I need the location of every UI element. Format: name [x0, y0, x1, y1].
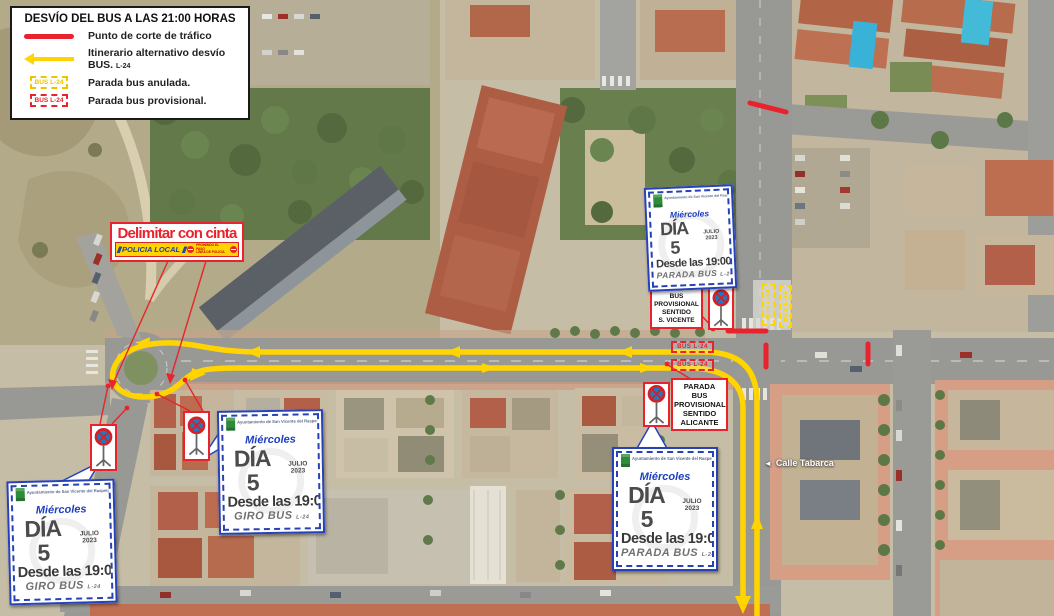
- legend-item-provisional-stop: BUS L-24 Parada bus provisional.: [20, 94, 240, 107]
- sign-date: JULIO 2023: [72, 530, 107, 545]
- police-badge-label: [112, 496, 113, 502]
- annulled-stop-sample: BUS L-24: [30, 76, 69, 89]
- detour-arrow-sample: [24, 53, 74, 65]
- sign-action: PARADA BUS L-24: [656, 267, 727, 282]
- provisional-bus-stop-marker: BUS L-24: [671, 359, 714, 371]
- left-arrow-icon: ◄: [764, 459, 772, 468]
- no-stopping-sign-icon: [90, 424, 117, 471]
- provisional-bus-stop-marker: BUS L-24: [671, 341, 714, 353]
- annulled-bus-stop-marker: BUS L-24: [779, 285, 792, 328]
- municipality-text: Ayuntamiento de San Vicente del Raspeig: [632, 456, 714, 461]
- arrow-bar: [33, 57, 74, 61]
- legend-item-annulled-stop: BUS L-24 Parada bus anulada.: [20, 76, 240, 89]
- sign-day: DÍA 5: [227, 446, 279, 495]
- tape-text: POLICIA LOCAL: [122, 245, 180, 254]
- bus-detour-map: DESVÍO DEL BUS A LAS 21:00 HORAS Punto d…: [0, 0, 1054, 616]
- municipality-text: Ayuntamiento de San Vicente del Raspeig: [237, 418, 320, 424]
- sign-date: JULIO 2023: [697, 228, 726, 241]
- traffic-cut-lines: [728, 103, 868, 367]
- municipality-text: Ayuntamiento de San Vicente del Raspeig: [664, 193, 733, 200]
- no-entry-icon: [187, 246, 194, 253]
- legend-item-label: Punto de corte de tráfico: [88, 30, 212, 42]
- permit-sign-giro-bus-southwest: Ayuntamiento de San Vicente del Raspeig …: [6, 479, 117, 606]
- sign-day: DÍA 5: [621, 483, 672, 531]
- legend-item-label: Parada bus provisional.: [88, 95, 206, 107]
- sign-action: GIRO BUS L-24: [228, 509, 316, 526]
- legend-panel: DESVÍO DEL BUS A LAS 21:00 HORAS Punto d…: [10, 6, 250, 120]
- permit-sign-parada-bus-south: Ayuntamiento de San Vicente del Raspeig …: [612, 447, 718, 571]
- town-logo-icon: [226, 418, 235, 431]
- sign-time: Desde las 19:00h.: [621, 531, 709, 547]
- street-name: Calle Tabarca: [776, 458, 834, 468]
- no-entry-icon: [230, 246, 237, 253]
- sign-action: GIRO BUS L-24: [18, 579, 108, 596]
- sign-date: JULIO 2023: [675, 498, 709, 512]
- tape-note: PROHIBIDO EL PASOLÍNEA DE POLICÍA: [196, 244, 228, 254]
- no-stopping-sign-icon: [183, 411, 210, 461]
- town-logo-icon: [653, 194, 663, 207]
- town-logo-icon: [621, 454, 630, 467]
- legend-item-label: Itinerario alternativo desvío BUS. L-24: [88, 47, 240, 71]
- sign-action: PARADA BUS L-24: [621, 547, 709, 562]
- no-stopping-sign-icon: [643, 382, 670, 427]
- delimit-title: Delimitar con cinta: [115, 225, 239, 242]
- annulled-bus-stop-marker: BUS L-24: [762, 283, 775, 326]
- sign-time: Desde las 19:00h.: [227, 493, 315, 511]
- tape-stripes: ///: [182, 245, 185, 255]
- provisional-stop-sample: BUS L-24: [30, 94, 69, 107]
- sign-day: DÍA 5: [16, 516, 69, 565]
- legend-item-label: Parada bus anulada.: [88, 77, 190, 89]
- town-logo-icon: [16, 488, 25, 501]
- tape-stripes: ///: [117, 245, 120, 255]
- delimit-tape-sign: Delimitar con cinta /// POLICIA LOCAL //…: [110, 222, 244, 262]
- sign-day: DÍA 5: [654, 219, 695, 259]
- street-label-calle-tabarca: ◄ Calle Tabarca: [764, 458, 834, 468]
- legend-title: DESVÍO DEL BUS A LAS 21:00 HORAS: [20, 13, 240, 25]
- police-tape: /// POLICIA LOCAL /// PROHIBIDO EL PASOL…: [115, 242, 239, 257]
- legend-item-traffic-cut: Punto de corte de tráfico: [20, 30, 240, 42]
- legend-item-detour: Itinerario alternativo desvío BUS. L-24: [20, 47, 240, 71]
- no-stopping-sign-icon: [708, 286, 734, 330]
- permit-sign-giro-bus-center: Ayuntamiento de San Vicente del Raspeig …: [217, 409, 325, 535]
- sign-date: JULIO 2023: [281, 460, 315, 475]
- municipality-text: Ayuntamiento de San Vicente del Raspeig: [27, 488, 110, 495]
- traffic-cut-line-sample: [24, 34, 74, 39]
- arrow-head: [24, 53, 34, 65]
- permit-sign-parada-bus-north: Ayuntamiento de San Vicente del Raspeig …: [644, 184, 737, 292]
- label-parada-provisional-alicante: PARADA BUS PROVISIONAL SENTIDO ALICANTE: [671, 378, 728, 431]
